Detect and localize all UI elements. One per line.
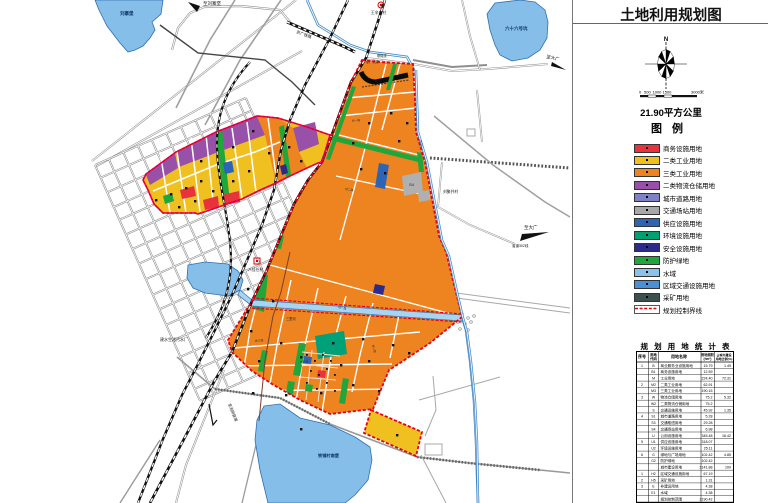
svg-text:S: S <box>652 408 655 412</box>
svg-text:5.28: 5.28 <box>706 415 713 419</box>
svg-text:三里河: 三里河 <box>286 316 296 321</box>
svg-text:6.98: 6.98 <box>706 427 713 431</box>
svg-text:至大广: 至大广 <box>524 224 538 231</box>
svg-text:15.79: 15.79 <box>704 364 713 368</box>
svg-text:U2: U2 <box>651 447 655 451</box>
svg-text:1.31: 1.31 <box>706 478 713 482</box>
svg-text:纬三路: 纬三路 <box>255 338 264 343</box>
svg-text:B1: B1 <box>651 370 655 374</box>
svg-text:4: 4 <box>641 415 643 419</box>
svg-text:1000: 1000 <box>653 90 663 95</box>
svg-text:2141.88: 2141.88 <box>700 466 713 470</box>
svg-text:B: B <box>652 364 655 368</box>
svg-text:190.15: 190.15 <box>702 389 713 393</box>
svg-text:G2: G2 <box>651 459 656 463</box>
svg-text:三类工业用地: 三类工业用地 <box>661 388 683 393</box>
svg-text:S4: S4 <box>651 427 655 431</box>
svg-text:G: G <box>652 453 655 457</box>
svg-text:1500: 1500 <box>663 90 673 95</box>
svg-text:S4: S4 <box>409 182 415 187</box>
svg-text:2: 2 <box>641 478 643 482</box>
svg-text:城市建设用地: 城市建设用地 <box>661 465 683 470</box>
svg-text:E1: E1 <box>651 491 655 495</box>
svg-text:U: U <box>652 434 655 438</box>
svg-text:非建设用地: 非建设用地 <box>661 484 679 489</box>
svg-text:用地比例(%): 用地比例(%) <box>716 356 733 361</box>
svg-text:U1: U1 <box>651 440 655 444</box>
svg-text:75.2: 75.2 <box>706 402 713 406</box>
svg-text:12.59: 12.59 <box>704 370 713 374</box>
svg-text:4.38: 4.38 <box>706 491 713 495</box>
svg-text:H5: H5 <box>651 478 655 482</box>
svg-text:八佳任村: 八佳任村 <box>248 267 263 272</box>
svg-text:5.32: 5.32 <box>724 396 731 400</box>
svg-text:4.38: 4.38 <box>706 485 713 489</box>
svg-text:铁铺村南堡: 铁铺村南堡 <box>318 452 340 459</box>
svg-text:72.31: 72.31 <box>722 377 731 381</box>
svg-text:二类工业用地: 二类工业用地 <box>661 382 683 387</box>
svg-text:区域交通设施用地: 区域交通设施用地 <box>661 471 690 476</box>
svg-text:供应设施用地: 供应设施用地 <box>661 439 683 444</box>
svg-text:1.49: 1.49 <box>724 364 731 368</box>
svg-text:采矿用地: 采矿用地 <box>661 477 676 482</box>
svg-text:318.07: 318.07 <box>702 440 713 444</box>
svg-text:建水生活污水厂: 建水生活污水厂 <box>160 336 188 342</box>
svg-text:1.35: 1.35 <box>724 408 731 412</box>
svg-text:刘聚井村: 刘聚井村 <box>443 189 458 194</box>
svg-text:2190.42: 2190.42 <box>700 497 713 501</box>
svg-text:公用设施用地: 公用设施用地 <box>661 433 683 438</box>
svg-text:王辛庄村: 王辛庄村 <box>371 10 386 15</box>
svg-text:商务设施用地: 商务设施用地 <box>661 369 683 374</box>
svg-text:序号: 序号 <box>637 353 646 359</box>
svg-text:1: 1 <box>641 364 643 368</box>
svg-text:E: E <box>652 485 655 489</box>
svg-text:500: 500 <box>644 90 651 95</box>
svg-text:交通枢纽用地: 交通枢纽用地 <box>661 420 683 425</box>
svg-text:省道302线: 省道302线 <box>512 243 529 248</box>
svg-text:100: 100 <box>725 466 731 470</box>
svg-text:物流仓储用地: 物流仓储用地 <box>661 395 683 400</box>
svg-text:4.85: 4.85 <box>724 453 731 457</box>
svg-text:环境设施用地: 环境设施用地 <box>661 446 683 451</box>
svg-text:代码: 代码 <box>649 356 657 361</box>
svg-text:102.42: 102.42 <box>702 453 713 457</box>
svg-text:S1: S1 <box>651 415 655 419</box>
svg-text:67.19: 67.19 <box>704 472 713 476</box>
svg-text:交通设施用地: 交通设施用地 <box>661 407 683 412</box>
svg-text:防护绿地: 防护绿地 <box>661 458 676 463</box>
svg-text:六十六号坑: 六十六号坑 <box>505 25 528 32</box>
svg-text:5: 5 <box>641 440 643 444</box>
svg-text:W: W <box>652 396 656 400</box>
svg-text:345.48: 345.48 <box>702 434 713 438</box>
svg-text:H2: H2 <box>651 472 655 476</box>
svg-text:城市道路用地: 城市道路用地 <box>661 414 683 419</box>
svg-text:商业服务业设施用地: 商业服务业设施用地 <box>661 363 694 368</box>
svg-text:62.91: 62.91 <box>704 383 713 387</box>
svg-text:工业用地: 工业用地 <box>661 376 676 381</box>
svg-text:224.40: 224.40 <box>702 377 713 381</box>
svg-text:规划控制范围: 规划控制范围 <box>661 496 683 501</box>
svg-text:M2: M2 <box>651 383 656 387</box>
svg-text:M: M <box>652 377 655 381</box>
svg-text:联络线: 联络线 <box>377 53 387 58</box>
svg-text:二类物流仓储用地: 二类物流仓储用地 <box>661 401 690 406</box>
svg-text:S3: S3 <box>651 421 655 425</box>
svg-text:交通场站用地: 交通场站用地 <box>661 426 683 431</box>
svg-text:25.11: 25.11 <box>704 447 713 451</box>
svg-text:2: 2 <box>641 383 643 387</box>
svg-text:102.42: 102.42 <box>702 459 713 463</box>
svg-text:75.2: 75.2 <box>706 396 713 400</box>
svg-text:刘寨堡: 刘寨堡 <box>120 10 134 17</box>
svg-text:用地名称: 用地名称 <box>670 353 687 359</box>
svg-text:0: 0 <box>639 90 642 95</box>
svg-text:29.28: 29.28 <box>704 421 713 425</box>
svg-text:1: 1 <box>641 472 643 476</box>
svg-text:45.92: 45.92 <box>704 408 713 412</box>
svg-text:(hm²): (hm²) <box>704 357 712 361</box>
svg-text:W2: W2 <box>651 402 656 406</box>
svg-text:M3: M3 <box>651 389 656 393</box>
svg-text:3: 3 <box>641 396 643 400</box>
svg-text:6: 6 <box>641 453 643 457</box>
svg-text:水域: 水域 <box>661 490 669 495</box>
svg-text:3000米: 3000米 <box>691 89 704 95</box>
svg-text:绿地与广场用地: 绿地与广场用地 <box>661 452 687 457</box>
svg-text:纬四路: 纬四路 <box>300 360 309 364</box>
svg-text:16.42: 16.42 <box>722 434 731 438</box>
svg-text:至刘寨堡: 至刘寨堡 <box>203 0 221 6</box>
svg-text:3: 3 <box>641 485 643 489</box>
